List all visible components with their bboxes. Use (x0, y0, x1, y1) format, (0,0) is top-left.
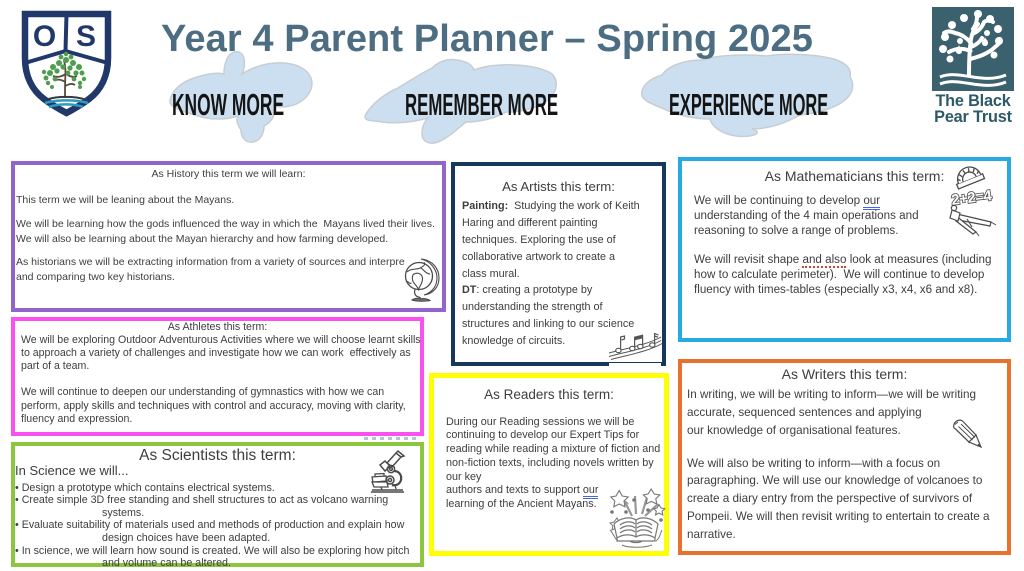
svg-text:O: O (33, 20, 56, 53)
svg-text:S: S (76, 20, 96, 53)
svg-text:2+2=4: 2+2=4 (950, 187, 993, 209)
